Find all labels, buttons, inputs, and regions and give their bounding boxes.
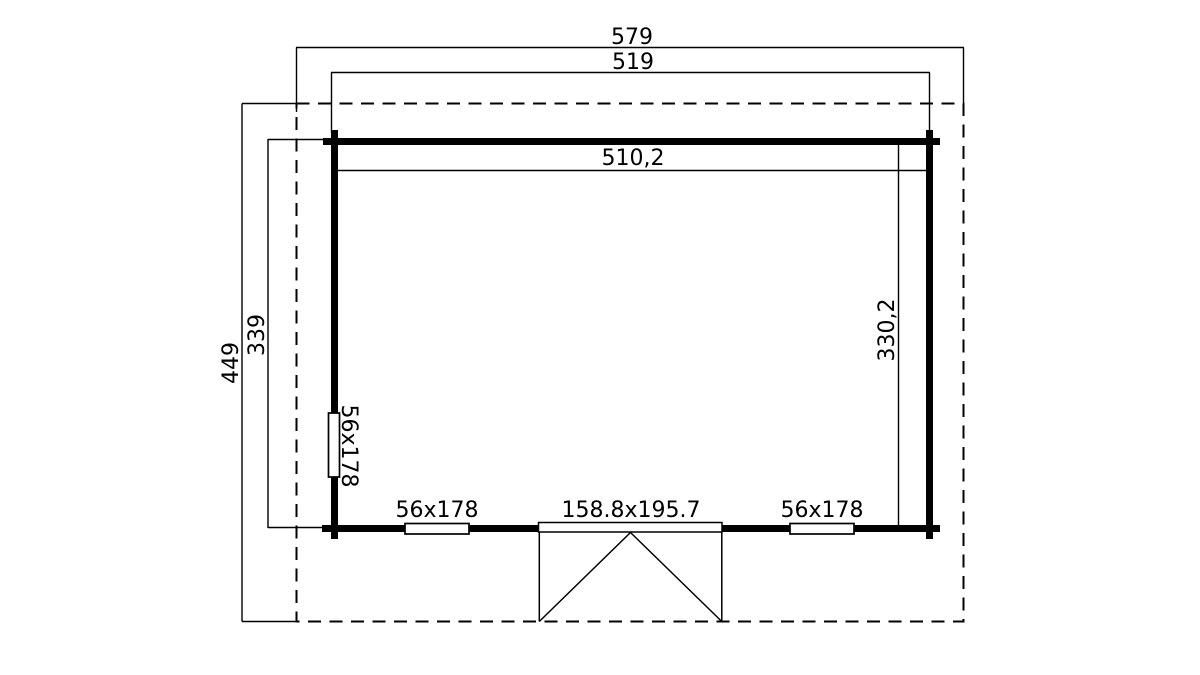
dim-label-overall-depth: 449 [219, 342, 244, 384]
window-bottom-1-label: 56x178 [395, 498, 478, 523]
floor-plan-drawing: 579 519 449 339 510,2 330,2 56x178 56x1 [0, 0, 1200, 675]
window-left-label: 56x178 [336, 404, 361, 487]
dim-label-wall-depth: 339 [245, 314, 270, 356]
dim-label-overall-width: 579 [611, 25, 653, 50]
window-bottom-2 [790, 524, 854, 535]
floor-plan-canvas: 579 519 449 339 510,2 330,2 56x178 56x1 [0, 0, 1200, 675]
roof-overhang-outline [297, 104, 964, 622]
dim-label-interior-depth: 330,2 [875, 299, 900, 362]
window-bottom-2-label: 56x178 [780, 498, 863, 523]
window-bottom-1 [405, 524, 469, 535]
dim-label-wall-width: 519 [612, 50, 654, 75]
door-threshold [539, 523, 723, 533]
door-swing-left-diagonal [539, 533, 630, 622]
door-label: 158.8x195.7 [562, 498, 701, 523]
door-swing-right-diagonal [631, 533, 722, 622]
dim-label-interior-width: 510,2 [602, 146, 665, 171]
